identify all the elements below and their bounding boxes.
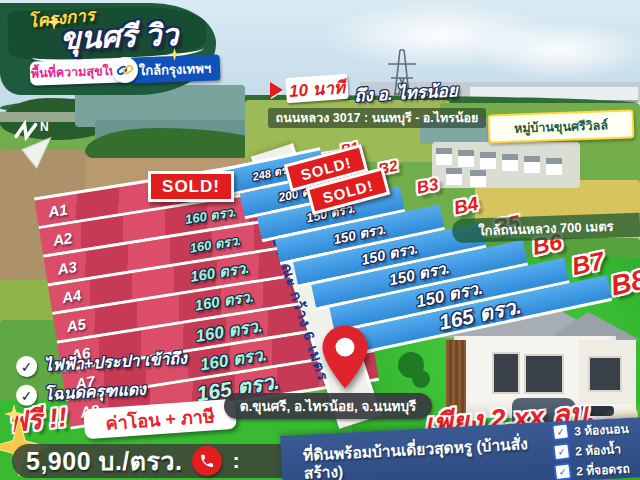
plot-id: A4 [61, 286, 83, 306]
phone-icon [192, 446, 222, 476]
checkbox-icon: ✓ [553, 462, 572, 480]
north-letter: N [40, 120, 49, 134]
house-feature: ✓3 ห้องนอน [552, 418, 629, 441]
poster: N A1 A2160 ตรว. A3160 ตรว. A4160 ตรว. A5… [0, 0, 640, 480]
arrow-icon [270, 82, 283, 98]
plot-id: B4 [452, 193, 480, 220]
house-feature-label: 3 ห้องนอน [574, 418, 630, 440]
house-feature-label: 2 ห้องน้ำ [575, 439, 622, 460]
offer-description: ที่ดินพร้อมบ้านเดี่ยวสุดหรู (บ้านสั่งสร้… [303, 435, 543, 480]
cloud [470, 20, 640, 80]
project-title: ขุนศรี วิว [59, 11, 179, 62]
plot-id: A2 [52, 229, 74, 249]
house-features-list: ✓3 ห้องนอน ✓2 ห้องน้ำ ✓2 ที่จอดรถ [552, 417, 632, 480]
price-per-wah: 5,900 บ./ตรว. [26, 441, 182, 480]
sparkle-icon [46, 14, 62, 30]
plot-id: B3 [415, 175, 440, 199]
house-feature: ✓2 ที่จอดรถ [554, 458, 631, 480]
house-feature-label: 2 ที่จอดรถ [576, 458, 631, 480]
minutes-text: ถึง อ. ไทรน้อย [353, 76, 458, 108]
house-feature: ✓2 ห้องน้ำ [553, 438, 630, 461]
house-window [492, 352, 520, 394]
village-name-box: หมู่บ้านขุนศรีวิลล์ [488, 109, 635, 143]
checkbox-icon: ✓ [552, 442, 571, 461]
sparkle-icon [4, 404, 24, 424]
checkbox-icon: ✓ [551, 422, 570, 441]
sparkle-icon [168, 48, 181, 61]
house-window [588, 356, 622, 392]
plot-id: A1 [47, 200, 69, 220]
plot-id: B8 [608, 264, 640, 303]
map-pin-icon [318, 320, 372, 394]
chain-link-icon [112, 57, 138, 83]
location-pill: ต.ขุนศรี, อ.ไทรน้อย, จ.นนทบุรี [224, 393, 432, 419]
plot-id: A5 [65, 315, 87, 335]
highway-line: ถนนหลวง 3017 : นนทบุรี - อ.ไทรน้อย [268, 108, 486, 128]
sold-sticker-a1: SOLD! [148, 171, 234, 202]
plot-id: A3 [56, 257, 78, 277]
house-glass-door [524, 354, 564, 394]
check-icon: ✓ [16, 355, 38, 377]
minutes-badge: 10 นาที [285, 74, 349, 103]
price-colon: : [232, 448, 239, 474]
north-arrow-icon [8, 115, 62, 183]
